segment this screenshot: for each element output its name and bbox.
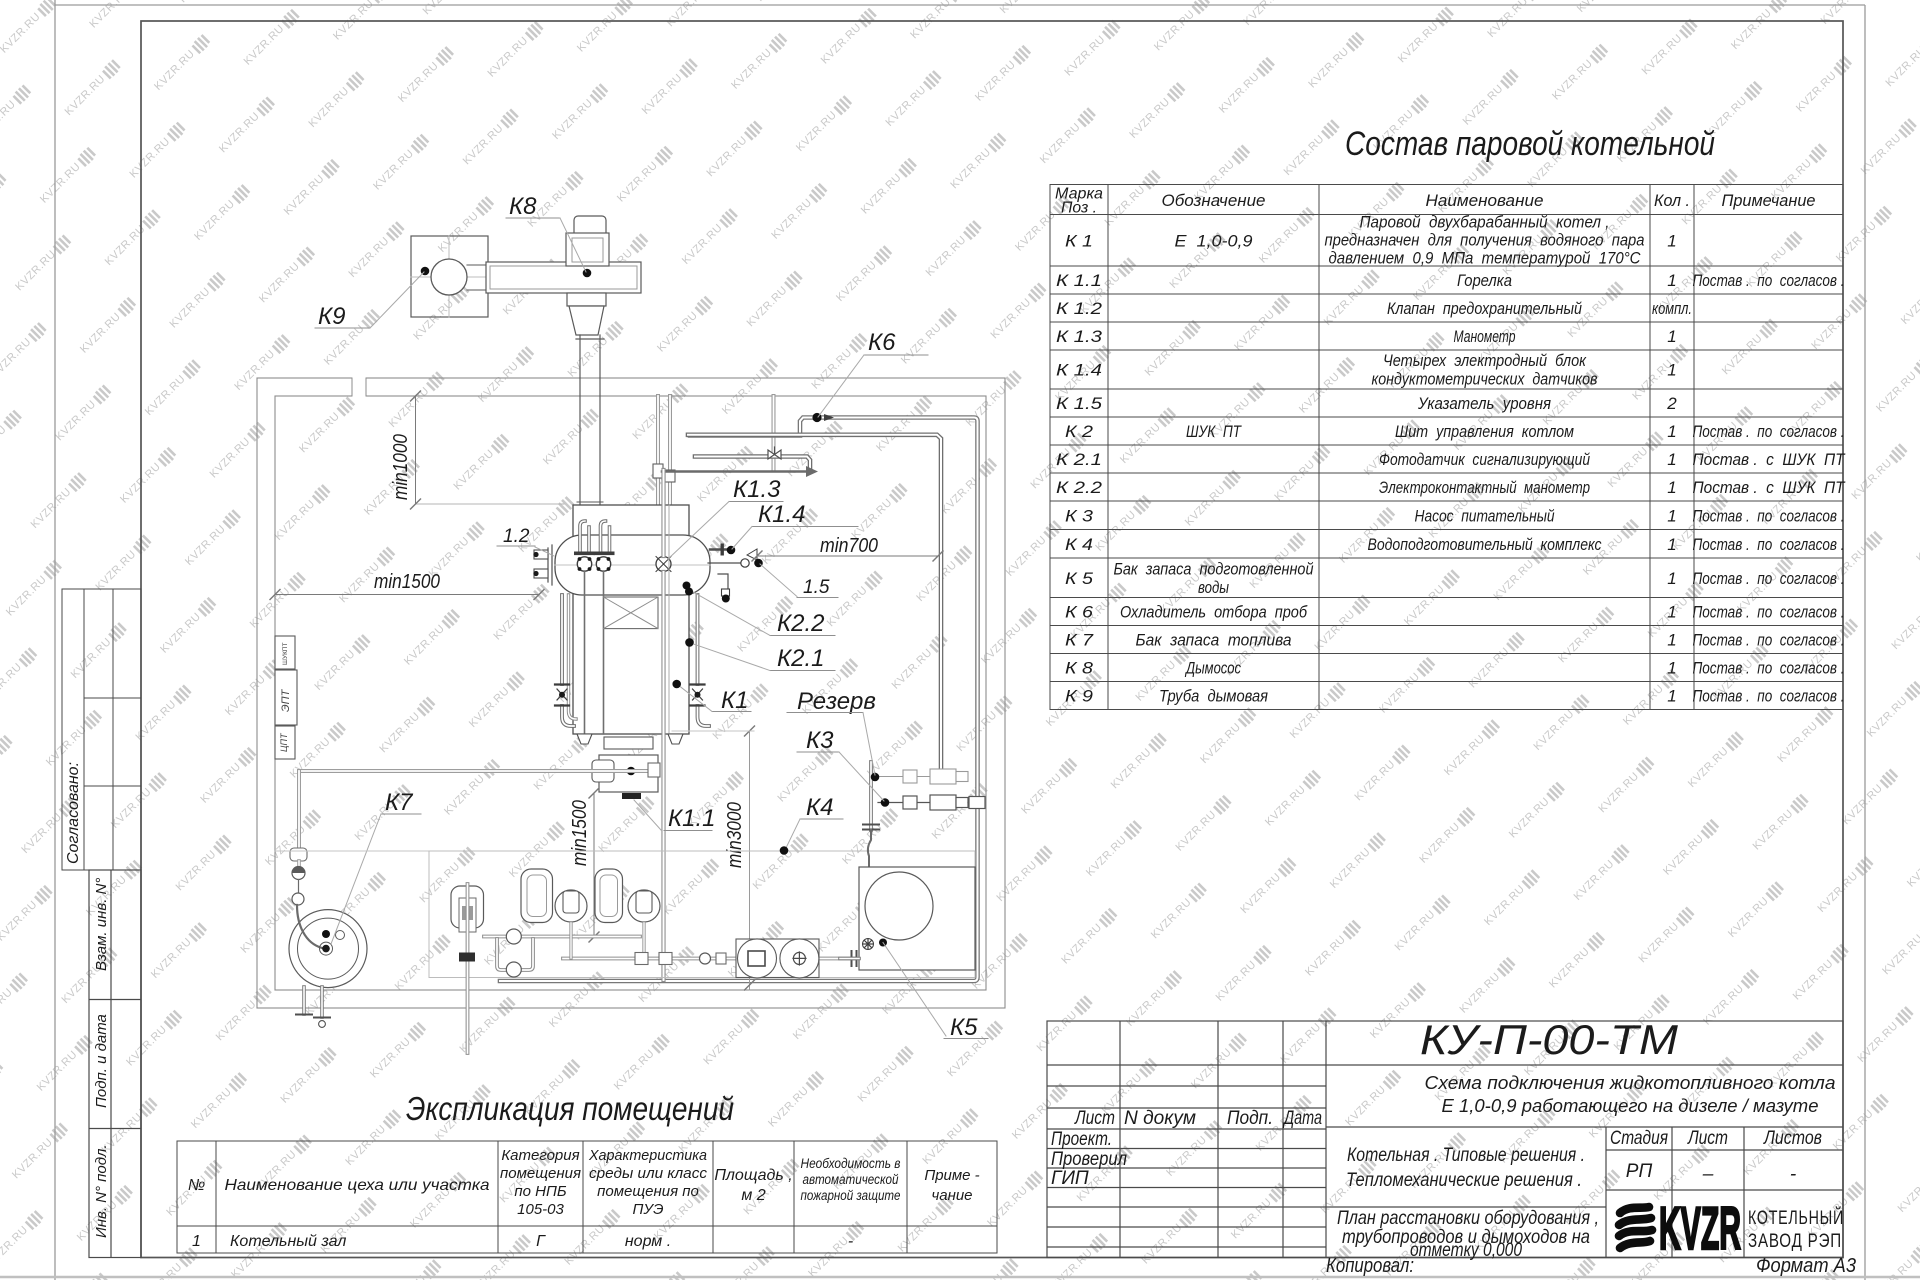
- svg-text:К7: К7: [385, 789, 414, 816]
- svg-text:Экспликация помещений: Экспликация помещений: [406, 1090, 734, 1127]
- svg-text:2: 2: [1666, 394, 1677, 413]
- svg-text:Шит управления котлом: Шит управления котлом: [1395, 422, 1574, 441]
- svg-text:1: 1: [1667, 603, 1676, 622]
- svg-text:N докум: N докум: [1124, 1108, 1196, 1129]
- svg-text:Манометр: Манометр: [1454, 327, 1516, 346]
- svg-text:автоматической: автоматической: [803, 1172, 899, 1187]
- svg-text:К 5: К 5: [1065, 569, 1094, 588]
- svg-text:KVZR: KVZR: [1659, 1195, 1741, 1262]
- svg-text:норм .: норм .: [625, 1233, 671, 1250]
- svg-text:Резерв: Резерв: [797, 688, 876, 715]
- svg-text:К 1.2: К 1.2: [1056, 299, 1103, 318]
- svg-text:Насос питательный: Насос питательный: [1415, 506, 1555, 525]
- svg-text:1: 1: [1667, 327, 1676, 346]
- svg-text:Постав . по согласов .: Постав . по согласов .: [1693, 659, 1845, 678]
- svg-text:-: -: [848, 1233, 853, 1250]
- svg-text:Взам. инв. N°: Взам. инв. N°: [93, 878, 110, 971]
- svg-text:К 1.5: К 1.5: [1056, 394, 1103, 413]
- svg-text:м 2: м 2: [741, 1187, 765, 1204]
- svg-text:Поз .: Поз .: [1061, 200, 1097, 217]
- svg-text:Лист: Лист: [1686, 1128, 1728, 1149]
- svg-text:предназначен для получения: предназначен для получения водяного пара: [1325, 231, 1645, 250]
- svg-text:К 1.4: К 1.4: [1056, 361, 1102, 380]
- svg-text:К 1: К 1: [1065, 231, 1093, 250]
- svg-text:Охладитель отбора проб: Охладитель отбора проб: [1120, 603, 1308, 622]
- svg-text:К4: К4: [806, 794, 834, 821]
- svg-text:РП: РП: [1626, 1161, 1653, 1182]
- svg-text:К2.2: К2.2: [777, 610, 825, 637]
- svg-text:1: 1: [1667, 687, 1676, 706]
- svg-text:min700: min700: [820, 535, 878, 557]
- svg-text:1: 1: [1667, 422, 1676, 441]
- svg-text:1: 1: [1667, 450, 1676, 469]
- svg-text:К3: К3: [806, 727, 834, 754]
- svg-text:Копировал:: Копировал:: [1326, 1255, 1414, 1277]
- svg-text:ШУК ПТ: ШУК ПТ: [1186, 422, 1242, 441]
- svg-text:Постав . по согласов .: Постав . по согласов .: [1693, 506, 1845, 525]
- svg-text:Наименование: Наименование: [1426, 191, 1544, 210]
- svg-text:чание: чание: [931, 1187, 972, 1204]
- svg-text:отметку 0,000: отметку 0,000: [1410, 1240, 1522, 1261]
- svg-text:Обозначение: Обозначение: [1162, 191, 1266, 210]
- svg-text:Труба дымовая: Труба дымовая: [1159, 687, 1268, 706]
- svg-text:1: 1: [1667, 535, 1676, 554]
- svg-text:К 4: К 4: [1065, 535, 1093, 554]
- svg-text:Наименование цеха или участ: Наименование цеха или участка: [225, 1177, 490, 1194]
- svg-text:Постав . с ШУК ПТ: Постав . с ШУК ПТ: [1693, 478, 1846, 497]
- svg-text:Инв. N° подл.: Инв. N° подл.: [93, 1144, 110, 1238]
- svg-text:Г: Г: [536, 1233, 546, 1250]
- svg-text:План расстановки оборудовани: План расстановки оборудования ,: [1337, 1208, 1599, 1229]
- svg-text:min1500: min1500: [374, 571, 440, 593]
- svg-text:Необходимость в: Необходимость в: [801, 1156, 901, 1171]
- svg-text:КУ-П-00-ТМ: КУ-П-00-ТМ: [1420, 1016, 1678, 1063]
- svg-text:Проверил: Проверил: [1051, 1149, 1127, 1170]
- svg-text:помещения по: помещения по: [597, 1183, 699, 1200]
- svg-text:К1.1: К1.1: [668, 805, 716, 832]
- svg-text:ШУКПТ: ШУКПТ: [282, 642, 289, 665]
- svg-text:Котельный зал: Котельный зал: [230, 1233, 346, 1250]
- svg-text:К1.3: К1.3: [733, 476, 781, 503]
- svg-text:К 1.1: К 1.1: [1056, 271, 1102, 290]
- svg-text:Приме -: Приме -: [924, 1167, 979, 1184]
- svg-text:Клапан предохранительный: Клапан предохранительный: [1387, 299, 1582, 318]
- svg-text:пожарной защите: пожарной защите: [801, 1188, 901, 1203]
- svg-text:Постав . по согласов .: Постав . по согласов .: [1693, 687, 1845, 706]
- svg-text:Постав . по согласов .: Постав . по согласов .: [1693, 271, 1845, 290]
- svg-text:105-03: 105-03: [517, 1201, 564, 1218]
- svg-text:ЭПТ: ЭПТ: [280, 688, 292, 712]
- svg-text:Горелка: Горелка: [1457, 271, 1512, 290]
- svg-text:Примечание: Примечание: [1722, 191, 1816, 210]
- svg-text:1: 1: [1667, 506, 1676, 525]
- svg-text:К6: К6: [868, 329, 896, 356]
- svg-text:помещения: помещения: [500, 1165, 581, 1182]
- svg-text:давлением 0,9 МПа температу: давлением 0,9 МПа температурой 170°С: [1329, 249, 1642, 268]
- svg-text:Паровой двухбарабанный котел: Паровой двухбарабанный котел ,: [1360, 213, 1610, 232]
- svg-text:КОТЕЛЬНЫЙ: КОТЕЛЬНЫЙ: [1748, 1207, 1844, 1229]
- svg-text:Водоподготовительный комплекс: Водоподготовительный комплекс: [1368, 535, 1602, 554]
- svg-text:–: –: [1702, 1164, 1714, 1185]
- svg-text:Площадь ,: Площадь ,: [714, 1167, 792, 1184]
- svg-text:1: 1: [1667, 361, 1676, 380]
- svg-text:-: -: [1790, 1164, 1796, 1185]
- svg-text:1.2: 1.2: [503, 526, 530, 547]
- svg-text:Постав . по согласов .: Постав . по согласов .: [1693, 535, 1845, 554]
- svg-text:Тепломеханические решения .: Тепломеханические решения .: [1346, 1170, 1582, 1191]
- svg-text:К 9: К 9: [1065, 687, 1094, 706]
- svg-text:Бак запаса топлива: Бак запаса топлива: [1136, 631, 1292, 650]
- svg-text:К2.1: К2.1: [777, 645, 825, 672]
- svg-text:Дата: Дата: [1282, 1108, 1322, 1129]
- svg-text:Дымосос: Дымосос: [1184, 659, 1241, 678]
- svg-text:Постав . по согласов .: Постав . по согласов .: [1693, 631, 1845, 650]
- svg-text:Фотодатчик сигнализирующий: Фотодатчик сигнализирующий: [1379, 450, 1590, 469]
- svg-text:К 7: К 7: [1065, 631, 1094, 650]
- svg-text:ГИП: ГИП: [1051, 1168, 1089, 1189]
- svg-text:Постав . с ШУК ПТ: Постав . с ШУК ПТ: [1693, 450, 1846, 469]
- svg-text:Характеристика: Характеристика: [588, 1147, 707, 1164]
- svg-text:№: №: [188, 1177, 205, 1194]
- svg-text:К5: К5: [950, 1014, 978, 1041]
- svg-text:К 8: К 8: [1065, 659, 1094, 678]
- svg-text:Электроконтактный манометр: Электроконтактный манометр: [1379, 478, 1590, 497]
- svg-text:1: 1: [1667, 478, 1676, 497]
- svg-text:К 2.1: К 2.1: [1056, 450, 1102, 469]
- svg-text:Е 1,0-0,9: Е 1,0-0,9: [1175, 231, 1254, 250]
- svg-text:Стадия: Стадия: [1610, 1128, 1668, 1149]
- svg-text:К 3: К 3: [1065, 506, 1094, 525]
- svg-text:min1000: min1000: [390, 434, 412, 500]
- svg-text:К8: К8: [509, 193, 537, 220]
- svg-text:К 2: К 2: [1065, 422, 1094, 441]
- svg-text:Постав . по согласов .: Постав . по согласов .: [1693, 422, 1845, 441]
- svg-text:К1: К1: [721, 687, 749, 714]
- svg-text:1: 1: [1667, 631, 1676, 650]
- svg-text:Котельная . Типовые решения .: Котельная . Типовые решения .: [1347, 1145, 1585, 1166]
- svg-text:кондуктометрических датчиков: кондуктометрических датчиков: [1372, 370, 1598, 389]
- svg-text:Согласовано:: Согласовано:: [65, 762, 82, 864]
- svg-text:Четырех электродный блок: Четырех электродный блок: [1383, 351, 1587, 370]
- svg-text:К1.4: К1.4: [758, 501, 806, 528]
- svg-text:Категория: Категория: [501, 1147, 579, 1164]
- svg-text:Постав . по согласов .: Постав . по согласов .: [1693, 569, 1845, 588]
- svg-text:min3000: min3000: [724, 802, 746, 868]
- svg-text:Листов: Листов: [1762, 1128, 1822, 1149]
- svg-text:Состав паровой котельной: Состав паровой котельной: [1345, 125, 1715, 163]
- svg-text:К 6: К 6: [1065, 603, 1094, 622]
- svg-text:Кол .: Кол .: [1654, 191, 1690, 210]
- svg-text:Схема подключения жидкотопли: Схема подключения жидкотопливного котла: [1425, 1072, 1836, 1093]
- svg-text:Постав . по согласов .: Постав . по согласов .: [1693, 603, 1845, 622]
- svg-text:ПУЭ: ПУЭ: [632, 1201, 663, 1218]
- svg-text:min1500: min1500: [569, 800, 591, 866]
- svg-text:1: 1: [1667, 231, 1676, 250]
- svg-text:1: 1: [1667, 271, 1676, 290]
- svg-text:Подп.: Подп.: [1227, 1108, 1273, 1129]
- svg-text:Е 1,0-0,9 работающего на ди: Е 1,0-0,9 работающего на дизеле / мазуте: [1442, 1095, 1819, 1116]
- svg-text:ЗАВОД РЭП: ЗАВОД РЭП: [1748, 1231, 1842, 1252]
- svg-text:Проект.: Проект.: [1051, 1129, 1112, 1150]
- svg-text:по НПБ: по НПБ: [514, 1183, 566, 1200]
- svg-text:Формат А3: Формат А3: [1756, 1255, 1856, 1277]
- svg-text:К9: К9: [318, 303, 346, 330]
- svg-text:компл.: компл.: [1652, 299, 1692, 318]
- svg-text:ЦПТ: ЦПТ: [279, 732, 289, 752]
- svg-text:К 2.2: К 2.2: [1056, 478, 1103, 497]
- svg-text:1.5: 1.5: [803, 577, 830, 598]
- svg-text:среды или класс: среды или класс: [589, 1165, 707, 1182]
- svg-text:1: 1: [1667, 659, 1676, 678]
- svg-text:Указатель уровня: Указатель уровня: [1417, 394, 1551, 413]
- svg-text:1: 1: [192, 1233, 201, 1250]
- svg-text:Подп. и дата: Подп. и дата: [93, 1014, 110, 1108]
- svg-text:Лист: Лист: [1073, 1108, 1115, 1129]
- svg-text:К 1.3: К 1.3: [1056, 327, 1103, 346]
- svg-text:1: 1: [1667, 569, 1676, 588]
- svg-text:воды: воды: [1198, 578, 1229, 597]
- svg-text:Бак запаса подготовленной: Бак запаса подготовленной: [1114, 559, 1314, 578]
